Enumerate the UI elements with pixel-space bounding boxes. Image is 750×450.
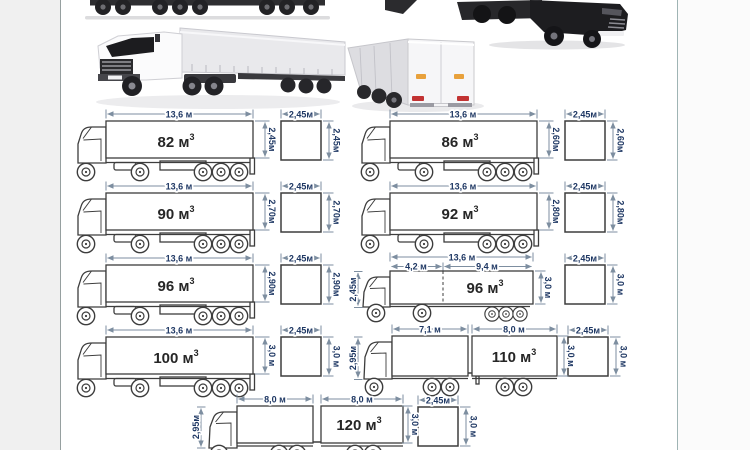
diagram-truck-92: 13,6 м 2,80м 92 м3 2,45м 2,80м	[352, 178, 642, 256]
cross-width-label: 2,45м	[573, 253, 598, 263]
volume-label: 86 м3	[442, 132, 479, 151]
volume-label: 90 м3	[158, 204, 195, 223]
cross-height-label: 2,45м	[332, 128, 342, 153]
page-margin-right	[677, 0, 750, 450]
volume-label: 82 м3	[158, 132, 195, 151]
height-label: 2,90м	[267, 271, 277, 296]
rear-length-label: 8,0 м	[351, 394, 373, 404]
height-label: 3,0 м	[543, 277, 553, 299]
height-label: 2,80м	[551, 199, 561, 224]
cross-width-label: 2,45м	[289, 181, 314, 191]
rear-length-label: 9,4 м	[476, 261, 498, 271]
front-length-label: 8,0 м	[264, 394, 286, 404]
height-label: 3,0 м	[410, 414, 420, 436]
cross-height-label: 3,0 м	[469, 416, 479, 438]
diagram-truck-86: 13,6 м 2,60м 86 м3 2,45м 2,60м	[352, 106, 642, 184]
front-length-label: 4,2 м	[405, 261, 427, 271]
diagram-roadtrain-120: 8,0 м 8,0 м 2,95м 3,0 м 120 м3 2,45м 3,0…	[195, 392, 485, 450]
cross-height-label: 2,90м	[332, 272, 342, 297]
total-length-label: 13,6 м	[449, 252, 476, 262]
height-label: 2,45м	[267, 127, 277, 152]
cab-height-label: 2,45м	[348, 277, 358, 302]
cross-height-label: 3,0 м	[332, 346, 342, 368]
length-label: 13,6 м	[450, 181, 477, 191]
cross-height-label: 2,70м	[332, 200, 342, 225]
cross-height-label: 3,0 м	[619, 346, 629, 368]
cross-width-label: 2,45м	[576, 325, 601, 335]
cross-width-label: 2,45м	[573, 181, 598, 191]
height-label: 2,70м	[267, 199, 277, 224]
cab-height-label: 2,95м	[191, 415, 201, 440]
cross-height-label: 3,0 м	[616, 274, 626, 296]
page-margin-left	[0, 0, 61, 450]
truck-volumes-infographic: 13,6 м 2,45м 82 м3 2,45м 2,45м 13,6 м 2,…	[0, 0, 750, 450]
cross-width-label: 2,45м	[289, 325, 314, 335]
front-length-label: 7,1 м	[419, 324, 441, 334]
height-label: 3,0 м	[566, 345, 576, 367]
volume-label: 96 м3	[158, 276, 195, 295]
volume-label: 100 м3	[153, 348, 198, 367]
cross-width-label: 2,45м	[426, 395, 451, 405]
volume-label: 110 м3	[492, 347, 536, 366]
diagram-truck-82: 13,6 м 2,45м 82 м3 2,45м 2,45м	[68, 106, 358, 184]
length-label: 13,6 м	[166, 181, 193, 191]
cross-height-label: 2,60м	[616, 128, 626, 153]
height-label: 2,60м	[551, 127, 561, 152]
rear-length-label: 8,0 м	[503, 324, 525, 334]
volume-label: 120 м3	[336, 415, 381, 434]
diagram-truck-100: 13,6 м 3,0 м 100 м3 2,45м 3,0 м	[68, 322, 358, 400]
diagram-roadtrain-110: 7,1 м 8,0 м 2,95м 3,0 м 110 м3 2,45м 3,0…	[352, 322, 642, 400]
cross-width-label: 2,45м	[289, 109, 314, 119]
diagram-truck-jumbo-96: 13,6 м 4,2 м 9,4 м 2,45м 3,0 м 96 м3 2,4…	[352, 250, 642, 328]
volume-label: 92 м3	[442, 204, 479, 223]
white-semitrailer-truck-photo	[88, 22, 350, 114]
content-area: 13,6 м 2,45м 82 м3 2,45м 2,45м 13,6 м 2,…	[61, 0, 677, 450]
diagram-truck-90: 13,6 м 2,70м 90 м3 2,45м 2,70м	[68, 178, 358, 256]
height-label: 3,0 м	[267, 345, 277, 367]
length-label: 13,6 м	[166, 109, 193, 119]
volume-label: 96 м3	[467, 278, 504, 297]
length-label: 13,6 м	[166, 325, 193, 335]
cross-width-label: 2,45м	[573, 109, 598, 119]
cab-height-label: 2,95м	[348, 346, 358, 371]
length-label: 13,6 м	[450, 109, 477, 119]
cross-height-label: 2,80м	[616, 200, 626, 225]
trailer-rear-view-photo	[346, 12, 511, 116]
cross-width-label: 2,45м	[289, 253, 314, 263]
length-label: 13,6 м	[166, 253, 193, 263]
diagram-truck-96: 13,6 м 2,90м 96 м3 2,45м 2,90м	[68, 250, 358, 328]
